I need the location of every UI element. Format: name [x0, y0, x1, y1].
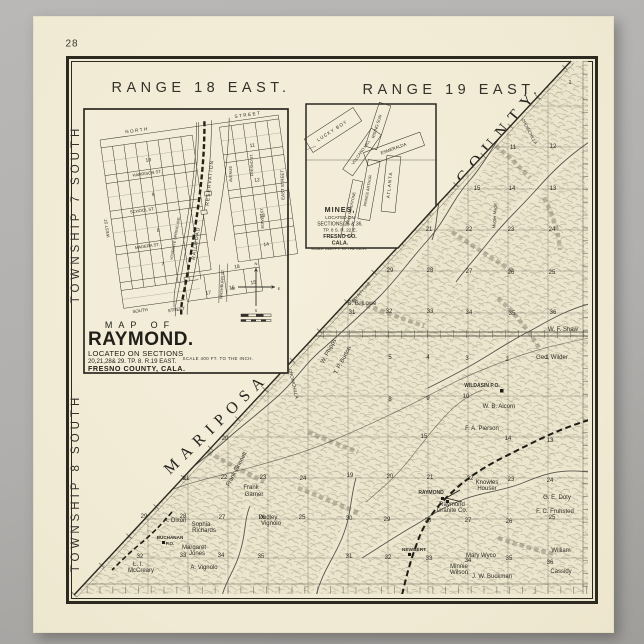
owner-label: G. E. Doty	[543, 495, 571, 501]
section-number: 21	[427, 475, 434, 481]
buchanan-marker	[162, 541, 165, 544]
section-number: 24	[300, 476, 307, 482]
compass-letter: E	[278, 286, 281, 291]
owner-label: William	[551, 548, 570, 554]
street-label: FRESNO ST.	[250, 154, 255, 177]
town-label: RAYMOND	[418, 490, 444, 496]
section-number: 14	[509, 186, 516, 192]
owner-label: Houser	[477, 486, 496, 492]
owner-label: McCreary	[128, 568, 154, 574]
section-number: 24	[549, 227, 556, 233]
owner-label: A. Dixon	[164, 518, 187, 524]
compass-letter: S	[255, 308, 258, 313]
raymond-title-block: MAP OF RAYMOND. LOCATED ON SECTIONS 20,2…	[88, 320, 194, 374]
street-label: AVENUE	[228, 166, 234, 183]
section-number: 25	[549, 270, 556, 276]
section-number: 27	[466, 269, 473, 275]
owner-label: Granite Co.	[437, 508, 468, 514]
owner-label: Frank	[243, 485, 259, 491]
mines-line-5: FRESNO CO.	[323, 234, 357, 240]
owner-label: Geo. Wilder	[536, 355, 568, 361]
town-label: BUCHANAN	[157, 535, 184, 540]
section-number: 12	[550, 144, 557, 150]
owner-label: F. A. Pierson	[465, 426, 499, 432]
block-number: 17	[205, 290, 212, 297]
section-number: 31	[346, 554, 353, 560]
town-label: NEWBERT	[402, 547, 426, 553]
section-number: 15	[421, 434, 428, 440]
section-number: 27	[219, 515, 226, 521]
section-number: 27	[465, 518, 472, 524]
raymond-title-county: FRESNO COUNTY, CALA.	[88, 365, 194, 373]
section-number: 1	[568, 80, 571, 86]
mines-title: MINES,	[325, 205, 356, 214]
section-number: 23	[508, 227, 515, 233]
section-number: 21	[426, 227, 433, 233]
section-number: 25	[549, 515, 556, 521]
owner-label: A. Vignolo	[190, 565, 218, 571]
section-number: 35	[506, 556, 513, 562]
wildasin-marker	[500, 389, 504, 393]
section-number: 28	[427, 268, 434, 274]
section-number: 31	[349, 310, 356, 316]
section-number: 13	[550, 186, 557, 192]
owner-label: Jones	[189, 551, 205, 557]
map-poster-scene: 28 RANGE 18 EAST. RANGE 19 EAST. TOWNSHI…	[0, 0, 644, 644]
block-number: 11	[249, 142, 255, 149]
section-number: 14	[505, 436, 512, 442]
section-number: 20	[387, 474, 394, 480]
compass-letter: W	[231, 286, 235, 291]
town-label: WILDASIN P.O.	[464, 383, 500, 389]
raymond-title-located: LOCATED ON SECTIONS	[88, 350, 194, 359]
section-number: 23	[508, 477, 515, 483]
block-number: 12	[254, 177, 261, 184]
section-number: 29	[387, 268, 394, 274]
owner-label: Wilson	[450, 570, 468, 576]
block-number: 18	[234, 264, 241, 271]
section-number: 33	[426, 556, 433, 562]
section-number: 32	[385, 555, 392, 561]
block-number: 13	[259, 213, 266, 220]
section-number: 11	[510, 145, 517, 151]
section-number: 20	[222, 436, 229, 442]
newbert-marker	[408, 553, 411, 556]
block-number: 14	[263, 241, 270, 248]
section-number: 22	[466, 227, 473, 233]
section-number: 21	[183, 476, 190, 482]
owner-label: Vignolo	[261, 521, 282, 527]
section-number: 32	[386, 309, 393, 315]
section-number: 32	[137, 554, 144, 560]
section-number: 36	[550, 310, 557, 316]
section-number: 30	[346, 516, 353, 522]
section-number: 22	[221, 475, 228, 481]
owner-label: Mary Wyco	[466, 553, 497, 559]
section-number: 23	[260, 475, 267, 481]
owner-label: W. B. Alcorn	[483, 404, 516, 410]
section-number: 34	[466, 310, 473, 316]
compass-letter: N	[255, 261, 258, 266]
section-number: 26	[506, 519, 513, 525]
mines-line-2: LOCATED ON	[325, 215, 355, 220]
mines-line-4: TP. 8 S. R. 22 E.	[323, 228, 357, 233]
section-number: 10	[463, 394, 470, 400]
owner-label: J. W. Buckman	[472, 574, 512, 580]
section-number: 29	[141, 514, 148, 520]
owner-label: W. F. Shaw	[548, 327, 579, 333]
section-number: 19	[347, 473, 354, 479]
section-number: 34	[218, 553, 225, 559]
owner-label: Richards	[192, 528, 216, 534]
raymond-title-name: RAYMOND.	[88, 330, 194, 349]
section-number: 22	[467, 476, 474, 482]
section-number: 13	[547, 438, 554, 444]
section-number: 15	[474, 186, 481, 192]
town-label: P.O.	[166, 541, 174, 546]
owner-label: Cassidy	[550, 569, 571, 575]
owner-label: Garner	[245, 492, 264, 498]
section-number: 25	[299, 515, 306, 521]
street-label: EAST STREET	[279, 170, 285, 200]
owner-label: F. C. Fruhsted	[536, 509, 574, 515]
section-number: 29	[384, 517, 391, 523]
section-number: 24	[547, 478, 554, 484]
mines-scale-note: SCALE 2400 FT. TO THE INCH.	[311, 246, 367, 251]
section-number: 28	[425, 518, 432, 524]
raymond-marker2	[446, 500, 449, 503]
section-number: 33	[180, 553, 187, 559]
mines-inset: LUCKY BOYRISING SUNVOLCANO HILLESMERALDA…	[304, 102, 436, 251]
section-number: 26	[508, 270, 515, 276]
raymond-marker	[441, 497, 444, 500]
block-number: 10	[145, 157, 152, 164]
section-number: 33	[427, 309, 434, 315]
section-number: 35	[509, 311, 516, 317]
section-number: 35	[258, 554, 265, 560]
section-number: 36	[547, 560, 554, 566]
